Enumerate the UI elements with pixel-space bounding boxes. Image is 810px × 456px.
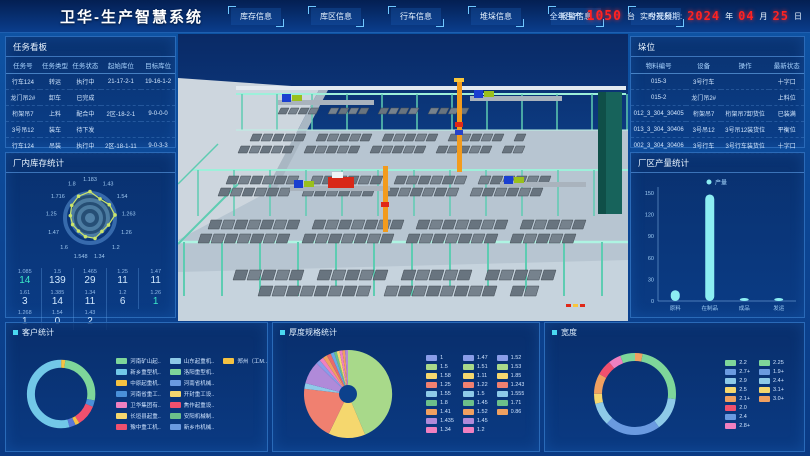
legend-label: 长垣县起重..	[130, 412, 161, 420]
legend-label: 卫华集团有..	[130, 401, 161, 409]
legend-item: 1.555	[497, 391, 525, 397]
table-cell: 卸车	[40, 90, 70, 106]
legend-label: 2.7+	[739, 369, 750, 375]
legend-color-chip	[759, 360, 770, 366]
legend-color-chip	[759, 396, 770, 402]
legend-item: 长垣县起重..	[116, 412, 161, 420]
legend-label: 郑州（工M..	[237, 357, 267, 365]
header-info: 全年生产 1050 台 今天日期: 2024 年 04 月 25 日	[550, 0, 802, 32]
stat-item: 1.3411	[74, 289, 107, 310]
legend-item: 1.58	[426, 373, 454, 379]
table-cell: 上料	[40, 106, 70, 122]
legend-label: 1.25	[440, 382, 451, 388]
legend-label: 山东起重机..	[184, 357, 215, 365]
legend-color-chip	[170, 413, 181, 419]
table-row: 龙门吊2#卸车已完成	[6, 90, 175, 106]
svg-text:90: 90	[648, 234, 654, 240]
thickness-legend: 11.51.581.251.551.81.411.4351.341.471.51…	[426, 355, 524, 433]
legend-label: 1.47	[477, 355, 488, 361]
legend-label: 洛阳重型机..	[184, 368, 215, 376]
radar-axis-label: 1.8	[68, 181, 76, 187]
stat-item: 1.38514	[42, 289, 75, 310]
legend-item: 焦作起重设..	[170, 401, 215, 409]
stat-value: 6	[107, 296, 139, 308]
legend-item: 1.25	[426, 382, 454, 388]
table-cell: 015-3	[631, 74, 686, 90]
legend-item: 卫华集团有..	[116, 401, 161, 409]
legend-color-chip	[116, 413, 127, 419]
svg-text:30: 30	[648, 277, 654, 283]
legend-color-chip	[426, 400, 437, 406]
legend-color-chip	[463, 400, 474, 406]
thickness-header: 厚度规格统计	[273, 323, 539, 342]
legend-label: 1.22	[477, 382, 488, 388]
table-cell	[101, 90, 142, 106]
table-cell: 装车	[40, 122, 70, 138]
task-board-title: 任务看板	[6, 37, 175, 57]
legend-color-chip	[116, 358, 127, 364]
legend-label: 1.34	[440, 427, 451, 433]
widths-header: 宽度	[545, 323, 804, 342]
table-cell: 012_3_304_30405	[631, 106, 686, 122]
slot-board-panel: 垛位 物料编号设备操作最新状态015-33号行车十字口015-2龙门吊2#上料位…	[630, 36, 805, 148]
stat-value: 11	[139, 275, 172, 287]
legend-item: 2.8+	[725, 423, 750, 429]
legend-label: 1.435	[440, 418, 454, 424]
legend-color-chip	[170, 358, 181, 364]
legend-color-chip	[725, 360, 736, 366]
legend-color-chip	[725, 423, 736, 429]
legend-item: 2.7+	[725, 369, 750, 375]
table-cell: 3号吊12	[686, 122, 721, 138]
legend-label: 1.53	[511, 364, 522, 370]
legend-item: 1.34	[426, 427, 454, 433]
radar-axis-label: 1.26	[121, 230, 132, 236]
legend-label: 1.45	[477, 400, 488, 406]
legend-item: 河南省重工..	[116, 390, 161, 398]
legend-color-chip	[725, 378, 736, 384]
legend-item: 1.22	[463, 382, 488, 388]
svg-text:0: 0	[651, 299, 654, 305]
column-header: 任务号	[6, 57, 40, 74]
legend-color-chip	[426, 427, 437, 433]
table-cell: 桁架吊7卸货位	[721, 106, 769, 122]
legend-item: 3.1+	[759, 387, 784, 393]
legend-color-chip	[426, 373, 437, 379]
legend-label: 1	[440, 355, 443, 361]
legend-item: 山东起重机..	[170, 357, 215, 365]
legend-item: 1.55	[426, 391, 454, 397]
column-header: 任务状态	[70, 57, 100, 74]
table-header-row: 物料编号设备操作最新状态	[631, 57, 804, 74]
legend-item: 1.9+	[759, 369, 784, 375]
legend-color-chip	[223, 358, 234, 364]
nav-button[interactable]: 堆垛信息	[471, 8, 521, 25]
legend-label: 2.0	[739, 405, 747, 411]
table-cell: 行车124	[6, 74, 40, 90]
column-header: 最新状态	[769, 57, 804, 74]
legend-label: 焦作起重设..	[184, 401, 215, 409]
legend-color-chip	[116, 424, 127, 430]
legend-color-chip	[463, 427, 474, 433]
legend-label: 2.5	[739, 387, 747, 393]
factory-stats-panel: 厂内库存统计 1.1831.431.541.2631.261.21.341.54…	[5, 152, 176, 318]
svg-text:60: 60	[648, 256, 654, 262]
legend-label: 河南省机械..	[184, 379, 215, 387]
table-row: 012_3_304_30405桁架吊7桁架吊7卸货位已装满	[631, 106, 804, 122]
data-table: 任务号任务类型任务状态起始库位目标库位行车124转运执行中21-17-2-119…	[6, 57, 175, 154]
legend-item: 2.4	[725, 414, 750, 420]
legend-item: 1.8	[426, 400, 454, 406]
legend-item: 1.47	[463, 355, 488, 361]
legend-label: 1.243	[511, 382, 525, 388]
table-cell	[721, 90, 769, 106]
table-cell: 配合中	[70, 106, 100, 122]
table-cell: 19-16-1-2	[141, 74, 175, 90]
stat-value: 1	[139, 296, 172, 308]
table-cell: 015-2	[631, 90, 686, 106]
legend-item: 2.25	[759, 360, 784, 366]
table-row: 桁架吊7上料配合中2区-18-2-19-0-0-0	[6, 106, 175, 122]
legend-item: 新乡重型机..	[116, 368, 161, 376]
date-label: 今天日期:	[648, 11, 682, 22]
svg-text:成品: 成品	[739, 304, 751, 312]
legend-label: 1.85	[511, 373, 522, 379]
factory-3d-view[interactable]	[178, 34, 628, 321]
table-cell: 桁架吊7	[686, 106, 721, 122]
legend-item: 中原起重机..	[116, 379, 161, 387]
widths-title: 宽度	[561, 327, 577, 338]
legend-color-chip	[759, 369, 770, 375]
legend-label: 1.8	[440, 400, 448, 406]
table-cell: 桁架吊7	[6, 106, 40, 122]
svg-text:在制品: 在制品	[701, 304, 718, 312]
annual-production-value: 1050	[587, 9, 622, 24]
legend-color-chip	[426, 391, 437, 397]
customers-header: 客户统计	[6, 323, 267, 342]
radar-axis-label: 1.6	[60, 245, 68, 251]
table-cell	[141, 122, 175, 138]
legend-color-chip	[426, 364, 437, 370]
legend-label: 1.51	[477, 364, 488, 370]
thickness-panel: 厚度规格统计 11.51.581.251.551.81.411.4351.341…	[272, 322, 540, 452]
legend-label: 新乡市机械..	[184, 423, 215, 431]
legend-color-chip	[463, 418, 474, 424]
radar-chart: 1.1831.431.541.2631.261.21.341.5481.61.4…	[6, 173, 175, 261]
radar-axis-label: 1.263	[122, 211, 136, 217]
right-column: 垛位 物料编号设备操作最新状态015-33号行车十字口015-2龙门吊2#上料位…	[630, 36, 805, 318]
legend-label: 2.9	[739, 378, 747, 384]
legend-color-chip	[497, 364, 508, 370]
legend-label: 1.71	[511, 400, 522, 406]
column-header: 起始库位	[101, 57, 142, 74]
legend-item: 豫中重工机..	[116, 423, 161, 431]
legend-item: 2.5	[725, 387, 750, 393]
radar-axis-label: 1.43	[103, 181, 114, 187]
radar-axis-label: 1.548	[74, 254, 88, 260]
stat-item: 1.5139	[42, 268, 75, 289]
legend-label: 3.0+	[773, 396, 784, 402]
table-cell: 待下发	[70, 122, 100, 138]
stat-item: 1.26	[107, 289, 140, 310]
nav-button[interactable]: 库存信息	[231, 8, 281, 25]
annual-production-unit: 台	[627, 11, 635, 22]
legend-item: 1.45	[463, 400, 488, 406]
customers-panel: 客户统计 河南矿山起..新乡重型机..中原起重机..河南省重工..卫华集团有..…	[5, 322, 268, 452]
legend-color-chip	[725, 396, 736, 402]
table-row: 015-33号行车十字口	[631, 74, 804, 90]
legend-item: 1.51	[463, 364, 488, 370]
legend-color-chip	[463, 364, 474, 370]
legend-item: 1.53	[497, 364, 525, 370]
legend-color-chip	[759, 387, 770, 393]
data-table: 物料编号设备操作最新状态015-33号行车十字口015-2龙门吊2#上料位012…	[631, 57, 804, 154]
table-header-row: 任务号任务类型任务状态起始库位目标库位	[6, 57, 175, 74]
table-cell	[101, 122, 142, 138]
radar-axis-label: 1.54	[117, 194, 128, 200]
left-column: 任务看板 任务号任务类型任务状态起始库位目标库位行车124转运执行中21-17-…	[5, 36, 176, 318]
legend-label: 2.4	[739, 414, 747, 420]
stat-item: 1.46529	[74, 268, 107, 289]
svg-text:150: 150	[645, 191, 654, 197]
column-header: 目标库位	[141, 57, 175, 74]
widths-donut-chart	[565, 342, 705, 446]
legend-item: 1.5	[426, 364, 454, 370]
legend-label: 1.45	[477, 418, 488, 424]
legend-label: 安阳机械制..	[184, 412, 215, 420]
legend-label: 开封重工设..	[184, 390, 215, 398]
legend-label: 1.55	[440, 391, 451, 397]
legend-color-chip	[463, 391, 474, 397]
radar-axis-label: 1.47	[48, 230, 59, 236]
stat-value: 3	[9, 296, 41, 308]
legend-item: 开封重工设..	[170, 390, 215, 398]
legend-color-chip	[116, 380, 127, 386]
legend-item: 1.45	[463, 418, 488, 424]
customers-donut-chart	[6, 342, 116, 446]
column-header: 操作	[721, 57, 769, 74]
legend-color-chip	[463, 373, 474, 379]
legend-label: 河南矿山起..	[130, 357, 161, 365]
table-cell: 3号行车	[686, 74, 721, 90]
legend-label: 2.4+	[773, 378, 784, 384]
stat-item: 1.4711	[139, 268, 172, 289]
date-month-unit: 月	[760, 11, 768, 22]
production-bar-chart: 产量1501209060300原料在制品成品发运	[631, 173, 804, 319]
table-cell: 已完成	[70, 90, 100, 106]
customers-title: 客户统计	[22, 327, 54, 338]
legend-item: 0.86	[497, 409, 525, 415]
radar-axis-label: 1.34	[94, 254, 105, 260]
annual-production-label: 全年生产	[550, 11, 582, 22]
widths-panel: 宽度 2.22.7+2.92.52.1+2.02.42.8+2.251.9+2.…	[544, 322, 805, 452]
legend-item: 2.4+	[759, 378, 784, 384]
legend-color-chip	[116, 369, 127, 375]
legend-item: 2.9	[725, 378, 750, 384]
legend-color-chip	[170, 391, 181, 397]
legend-color-chip	[170, 380, 181, 386]
nav-button[interactable]: 库区信息	[311, 8, 361, 25]
header-bar: 卫华-生产智慧系统 库存信息库区信息行车信息堆垛信息报警信息实时视频 全年生产 …	[0, 0, 810, 33]
table-cell: 已装满	[769, 106, 804, 122]
date-day-unit: 日	[794, 11, 802, 22]
radar-axis-label: 1.716	[51, 194, 65, 200]
legend-color-chip	[497, 355, 508, 361]
table-cell: 平衡位	[769, 122, 804, 138]
legend-item: 洛阳重型机..	[170, 368, 215, 376]
stat-item: 1.2511	[107, 268, 140, 289]
legend-color-chip	[426, 409, 437, 415]
svg-text:发运: 发运	[773, 304, 785, 312]
legend-item: 2.1+	[725, 396, 750, 402]
stat-value: 11	[107, 275, 139, 287]
table-cell: 执行中	[70, 74, 100, 90]
svg-text:原料: 原料	[670, 304, 682, 312]
legend-item: 1.41	[426, 409, 454, 415]
legend-item: 安阳机械制..	[170, 412, 215, 420]
legend-item: 1.243	[497, 382, 525, 388]
radar-axis-label: 1.25	[46, 211, 57, 217]
column-header: 物料编号	[631, 57, 686, 74]
legend-item: 河南矿山起..	[116, 357, 161, 365]
production-panel: 厂区产量统计 产量1501209060300原料在制品成品发运	[630, 152, 805, 318]
legend-label: 1.41	[440, 409, 451, 415]
legend-label: 新乡重型机..	[130, 368, 161, 376]
legend-label: 2.25	[773, 360, 784, 366]
table-cell: 3号吊12	[6, 122, 40, 138]
legend-color-chip	[170, 402, 181, 408]
legend-color-chip	[725, 405, 736, 411]
legend-item: 1.11	[463, 373, 488, 379]
table-cell: 龙门吊2#	[686, 90, 721, 106]
radar-axis-label: 1.2	[112, 245, 120, 251]
production-title: 厂区产量统计	[631, 153, 804, 173]
legend-color-chip	[170, 424, 181, 430]
legend-label: 2.8+	[739, 423, 750, 429]
legend-item: 1.435	[426, 418, 454, 424]
legend-label: 3.1+	[773, 387, 784, 393]
legend-label: 豫中重工机..	[130, 423, 161, 431]
legend-label: 1.52	[511, 355, 522, 361]
task-board-panel: 任务看板 任务号任务类型任务状态起始库位目标库位行车124转运执行中21-17-…	[5, 36, 176, 148]
legend-color-chip	[426, 418, 437, 424]
thickness-pie-chart	[288, 342, 412, 446]
legend-color-chip	[497, 382, 508, 388]
table-cell: 龙门吊2#	[6, 90, 40, 106]
table-cell: 013_3_304_30406	[631, 122, 686, 138]
date-month: 04	[738, 9, 754, 23]
legend-item: 1.52	[497, 355, 525, 361]
legend-color-chip	[463, 382, 474, 388]
bottom-row: 客户统计 河南矿山起..新乡重型机..中原起重机..河南省重工..卫华集团有..…	[5, 322, 805, 452]
task-table: 任务号任务类型任务状态起始库位目标库位行车124转运执行中21-17-2-119…	[6, 57, 175, 154]
legend-item: 2.2	[725, 360, 750, 366]
table-cell: 上料位	[769, 90, 804, 106]
svg-text:120: 120	[645, 213, 654, 219]
legend-item: 1.71	[497, 400, 525, 406]
slot-table: 物料编号设备操作最新状态015-33号行车十字口015-2龙门吊2#上料位012…	[631, 57, 804, 154]
legend-item: 1	[426, 355, 454, 361]
legend-item: 1.5	[463, 391, 488, 397]
legend-label: 中原起重机..	[130, 379, 161, 387]
legend-item: 河南省机械..	[170, 379, 215, 387]
legend-label: 1.11	[477, 373, 487, 379]
nav-button[interactable]: 行车信息	[391, 8, 441, 25]
stat-item: 1.613	[9, 289, 42, 310]
legend-label: 1.2	[477, 427, 485, 433]
legend-item: 1.52	[463, 409, 488, 415]
legend-color-chip	[725, 387, 736, 393]
table-row: 015-2龙门吊2#上料位	[631, 90, 804, 106]
column-header: 任务类型	[40, 57, 70, 74]
legend-item: 3.0+	[759, 396, 784, 402]
panel-bullet-icon	[280, 330, 285, 335]
svg-text:产量: 产量	[715, 179, 727, 187]
slot-board-title: 垛位	[631, 37, 804, 57]
stat-value: 29	[74, 275, 106, 287]
stat-item: 1.08514	[9, 268, 42, 289]
legend-label: 1.9+	[773, 369, 784, 375]
legend-color-chip	[116, 391, 127, 397]
column-header: 设备	[686, 57, 721, 74]
table-cell: 3号吊12装货位	[721, 122, 769, 138]
legend-color-chip	[463, 355, 474, 361]
table-row: 013_3_304_304063号吊123号吊12装货位平衡位	[631, 122, 804, 138]
table-row: 3号吊12装车待下发	[6, 122, 175, 138]
stat-value: 11	[74, 296, 106, 308]
table-cell: 转运	[40, 74, 70, 90]
legend-color-chip	[170, 369, 181, 375]
app-title: 卫华-生产智慧系统	[60, 6, 203, 27]
legend-color-chip	[497, 409, 508, 415]
panel-bullet-icon	[552, 330, 557, 335]
stat-value: 139	[42, 275, 74, 287]
stat-value: 14	[42, 296, 74, 308]
legend-item: 1.85	[497, 373, 525, 379]
date-year-unit: 年	[725, 11, 733, 22]
legend-color-chip	[497, 400, 508, 406]
legend-label: 河南省重工..	[130, 390, 161, 398]
legend-color-chip	[426, 382, 437, 388]
legend-color-chip	[497, 373, 508, 379]
legend-label: 2.2	[739, 360, 747, 366]
table-cell	[141, 90, 175, 106]
legend-label: 1.555	[511, 391, 525, 397]
legend-item: 2.0	[725, 405, 750, 411]
thickness-title: 厚度规格统计	[289, 327, 337, 338]
stat-item: 1.261	[139, 289, 172, 310]
date-day: 25	[773, 9, 789, 23]
legend-color-chip	[463, 409, 474, 415]
legend-color-chip	[426, 355, 437, 361]
legend-label: 0.86	[511, 409, 522, 415]
table-cell: 十字口	[769, 74, 804, 90]
stat-value: 14	[9, 275, 41, 287]
legend-label: 1.58	[440, 373, 451, 379]
panel-bullet-icon	[13, 330, 18, 335]
table-cell	[721, 74, 769, 90]
legend-color-chip	[116, 402, 127, 408]
customers-legend: 河南矿山起..新乡重型机..中原起重机..河南省重工..卫华集团有..长垣县起重…	[116, 357, 267, 431]
table-cell: 21-17-2-1	[101, 74, 142, 90]
legend-color-chip	[725, 369, 736, 375]
date-year: 2024	[687, 9, 720, 23]
legend-label: 1.52	[477, 409, 488, 415]
factory-stats-title: 厂内库存统计	[6, 153, 175, 173]
legend-color-chip	[725, 414, 736, 420]
legend-item: 郑州（工M..	[223, 357, 267, 365]
radar-axis-label: 1.183	[83, 177, 97, 183]
